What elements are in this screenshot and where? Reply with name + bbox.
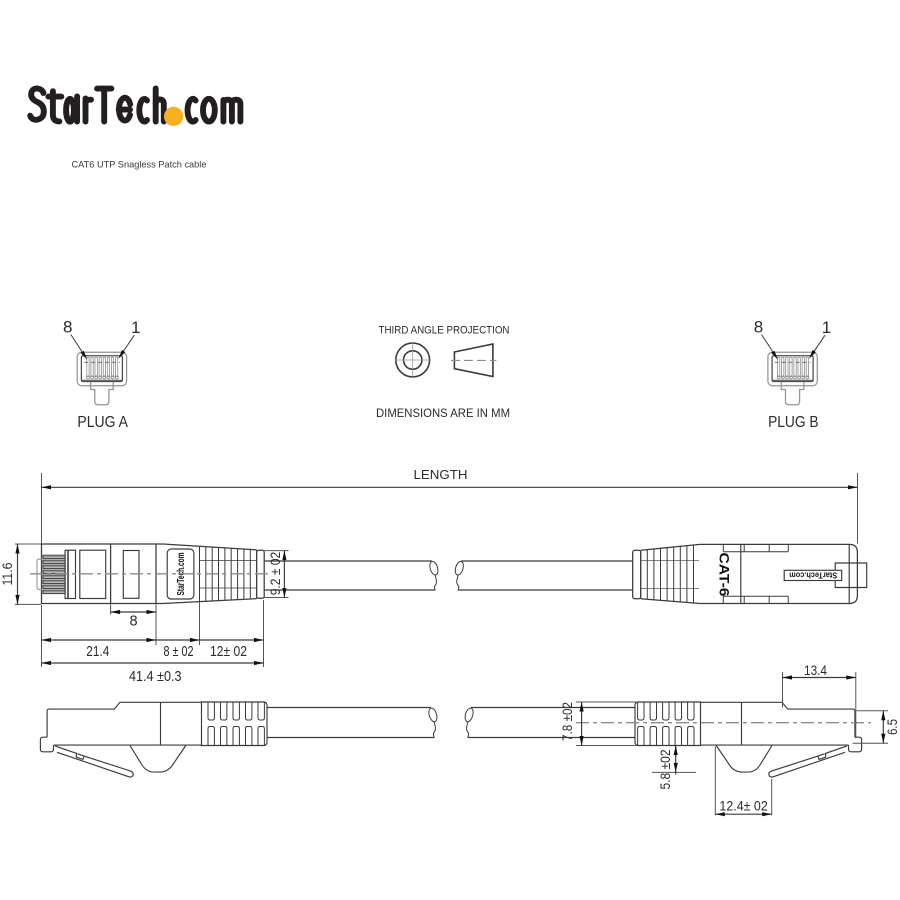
svg-text:8 ± 02: 8 ± 02 bbox=[164, 643, 194, 660]
svg-text:7.8 ±02: 7.8 ±02 bbox=[559, 702, 575, 741]
svg-text:12.4± 02: 12.4± 02 bbox=[719, 798, 768, 814]
svg-text:PLUG B: PLUG B bbox=[768, 414, 819, 431]
svg-text:13.4: 13.4 bbox=[804, 662, 827, 678]
svg-text:5.8 ±02: 5.8 ±02 bbox=[657, 749, 673, 789]
svg-text:8: 8 bbox=[754, 318, 763, 337]
svg-text:LENGTH: LENGTH bbox=[414, 467, 468, 482]
svg-text:1: 1 bbox=[822, 318, 831, 337]
svg-text:41.4 ±0.3: 41.4 ±0.3 bbox=[129, 668, 182, 685]
svg-text:1: 1 bbox=[131, 318, 140, 337]
svg-text:9.2 ± 02: 9.2 ± 02 bbox=[267, 552, 283, 596]
svg-text:CAT-6: CAT-6 bbox=[716, 553, 732, 597]
svg-text:12± 02: 12± 02 bbox=[210, 643, 247, 660]
svg-text:StarTech.com: StarTech.com bbox=[789, 571, 837, 581]
svg-text:PLUG A: PLUG A bbox=[77, 414, 128, 431]
svg-text:11.6: 11.6 bbox=[0, 562, 15, 585]
svg-text:8: 8 bbox=[130, 614, 138, 630]
svg-text:8: 8 bbox=[63, 318, 72, 337]
svg-text:21.4: 21.4 bbox=[86, 643, 109, 660]
svg-text:DIMENSIONS ARE IN MM: DIMENSIONS ARE IN MM bbox=[376, 406, 510, 420]
svg-text:CAT6 UTP Snagless Patch cable: CAT6 UTP Snagless Patch cable bbox=[72, 160, 207, 171]
svg-text:6.5: 6.5 bbox=[884, 719, 900, 735]
svg-text:THIRD ANGLE PROJECTION: THIRD ANGLE PROJECTION bbox=[379, 324, 510, 336]
